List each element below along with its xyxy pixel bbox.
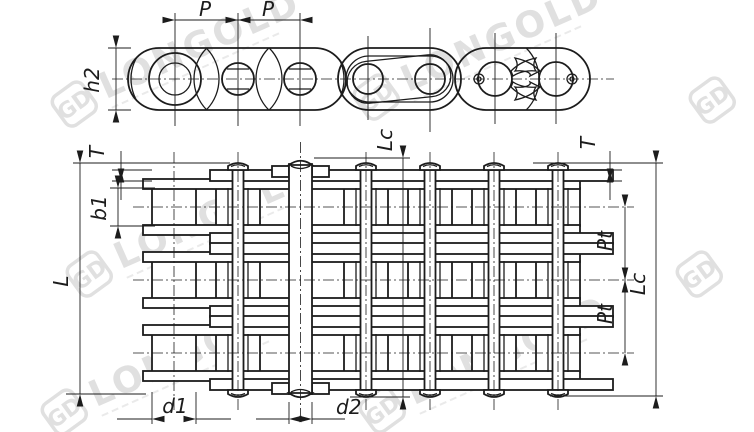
plate-thickness-label-left: T [85, 144, 109, 158]
chain-technical-drawing: GD LONGOLD GD [0, 0, 754, 432]
dim-plate-thickness-right: T [576, 135, 622, 200]
chain-drawing-page: GD LONGOLD GD [0, 0, 754, 432]
pin-diameter-label: d2 [336, 395, 361, 419]
dim-plate-thickness-left: T [85, 144, 152, 200]
plate-height-label: h2 [80, 67, 104, 92]
pitch-label-2: P [262, 0, 275, 21]
roller-diameter-label: d1 [162, 394, 187, 418]
pitch-label-1: P [199, 0, 212, 21]
transverse-pitch-label-1: Pt [593, 230, 617, 251]
dim-pin-diameter-d2: d2 [256, 395, 361, 424]
overall-length-label: Lc [626, 273, 650, 295]
center-pin-length-label: Lc [373, 129, 397, 151]
plate-thickness-label-right: T [576, 135, 600, 149]
transverse-pitch-label-2: Pt [593, 303, 617, 324]
pin-length-label: L [49, 275, 73, 286]
inner-width-label: b1 [87, 195, 111, 220]
dim-transverse-pitch-1: Pt [593, 207, 625, 280]
